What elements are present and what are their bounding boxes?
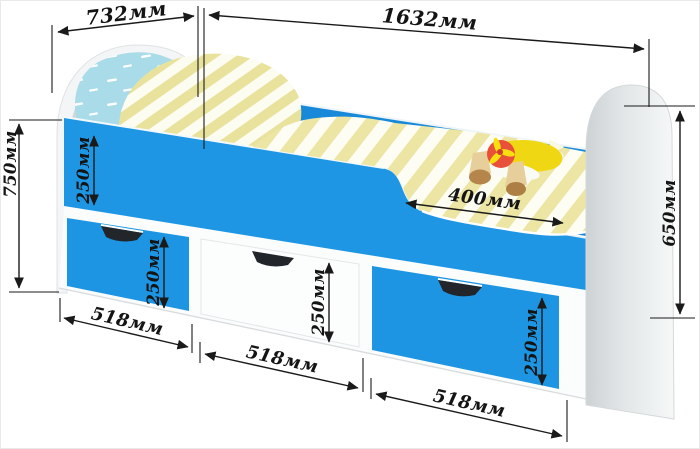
- dim-drawer-middle-width-label: 518мм: [244, 341, 320, 377]
- dim-headboard-width-label: 732мм: [84, 1, 168, 30]
- dim-overall-height: 750мм: [1, 120, 62, 292]
- plane-propeller-hub: [497, 149, 503, 155]
- dim-drawer-left-width-label: 518мм: [89, 303, 165, 340]
- dimension-diagram: 732мм 1632мм 750мм 650мм 250мм 250мм: [0, 0, 700, 449]
- dim-drawer-right-height-label: 250мм: [522, 308, 541, 376]
- footboard-face: [586, 85, 674, 419]
- footboard: [586, 85, 674, 419]
- dim-guard-rail-height-label: 250мм: [74, 136, 93, 204]
- dim-drawer-left-height-label: 250мм: [144, 238, 163, 306]
- dim-overall-height-label: 750мм: [1, 130, 20, 197]
- dim-drawer-middle-width: 518мм: [200, 341, 363, 392]
- dim-drawer-right-width-label: 518мм: [431, 385, 507, 422]
- dim-guard-rail-height: 250мм: [74, 136, 94, 205]
- dim-footboard-height-label: 650мм: [660, 179, 679, 246]
- dim-drawer-right-height: 250мм: [522, 298, 542, 385]
- bed-diagram-svg: 732мм 1632мм 750мм 650мм 250мм 250мм: [1, 1, 700, 449]
- dim-drawer-left-height: 250мм: [144, 237, 164, 308]
- plane-wheel-left: [469, 170, 491, 185]
- bed-illustration: [57, 45, 674, 419]
- dim-drawer-middle-height-label: 250мм: [309, 268, 328, 336]
- dim-drawer-middle-height: 250мм: [309, 263, 329, 342]
